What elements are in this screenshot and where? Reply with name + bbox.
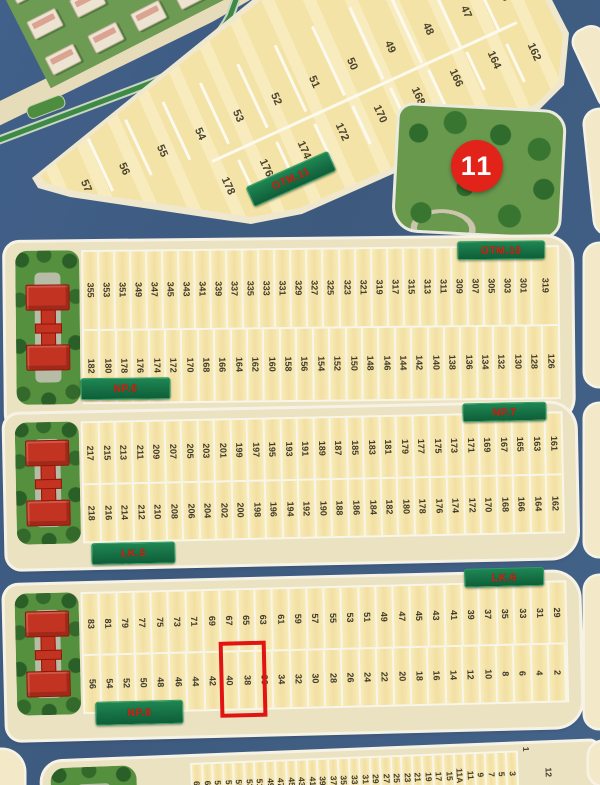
lot-191[interactable]: 191	[298, 418, 316, 479]
lot-179[interactable]: 179	[397, 416, 415, 477]
lot-204[interactable]: 204	[200, 483, 218, 539]
lot-313[interactable]: 313	[420, 248, 437, 325]
lot-173[interactable]: 173	[447, 415, 465, 476]
lot-number: 54	[104, 678, 114, 688]
building-bar	[25, 440, 70, 467]
lot-196[interactable]: 196	[266, 481, 284, 537]
lot-207[interactable]: 207	[165, 421, 183, 482]
lot-167[interactable]: 167	[496, 414, 514, 475]
lot-75[interactable]: 75	[152, 592, 171, 653]
lot-number: 79	[120, 618, 130, 628]
lot-number: 37	[329, 776, 339, 785]
lot-number: 11	[465, 771, 475, 780]
lot-number: 355	[85, 283, 95, 298]
lot-214[interactable]: 214	[117, 485, 135, 541]
lot-183[interactable]: 183	[364, 417, 382, 478]
lot-number: 174	[152, 358, 162, 373]
lot-number: 203	[201, 443, 211, 458]
lot-351[interactable]: 351	[115, 252, 132, 329]
lot-150[interactable]: 150	[346, 328, 363, 399]
lot-number: 199	[234, 443, 244, 458]
lot-162[interactable]: 162	[248, 329, 265, 400]
lot-136[interactable]: 136	[461, 327, 478, 398]
lot-number: 191	[300, 441, 310, 456]
lot-168[interactable]: 168	[498, 477, 516, 533]
lot-142[interactable]: 142	[412, 327, 429, 398]
lot-194[interactable]: 194	[282, 481, 300, 537]
lot-319[interactable]: 319	[372, 249, 389, 326]
partial-block	[585, 576, 600, 728]
lot-number: 50	[139, 678, 149, 688]
lot-number: 73	[172, 617, 182, 627]
lot-187[interactable]: 187	[331, 418, 349, 479]
lot-number: 158	[283, 357, 293, 372]
lot-30[interactable]: 30	[308, 650, 327, 706]
lot-198[interactable]: 198	[249, 482, 267, 538]
lot-number: 164	[234, 357, 244, 372]
lot-162[interactable]: 162	[525, 41, 543, 63]
apartment-pad	[14, 592, 81, 716]
lot-190[interactable]: 190	[316, 480, 334, 536]
lot-number: 59	[293, 614, 303, 624]
lot-number: 198	[252, 502, 262, 517]
lot-205[interactable]: 205	[182, 421, 200, 482]
lot-number: 311	[438, 279, 448, 294]
lot-156[interactable]: 156	[297, 329, 314, 400]
block-np7: 2172152132112092072052032011991971951931…	[4, 403, 577, 569]
lot-81[interactable]: 81	[100, 593, 119, 654]
apartment-pad	[15, 421, 82, 544]
lot-34[interactable]: 34	[273, 651, 292, 707]
lot-divider	[505, 43, 525, 82]
lot-number: 47	[397, 611, 407, 621]
lot-number: 319	[374, 280, 384, 295]
lot-73[interactable]: 73	[169, 592, 188, 653]
lot-number: 22	[380, 672, 390, 682]
lot-53[interactable]: 53	[342, 587, 361, 648]
lot-353[interactable]: 353	[99, 252, 116, 329]
lot-160[interactable]: 160	[264, 329, 281, 400]
lot-317[interactable]: 317	[388, 249, 405, 326]
lot-134[interactable]: 134	[478, 327, 495, 398]
lot-193[interactable]: 193	[281, 419, 299, 480]
lot-number: 193	[284, 442, 294, 457]
house-roof	[69, 0, 107, 18]
lot-number: 4	[535, 670, 545, 675]
lot-152[interactable]: 152	[330, 328, 347, 399]
lot-12[interactable]: 12	[463, 647, 482, 703]
lot-206[interactable]: 206	[183, 483, 201, 539]
lot-83[interactable]: 83	[82, 594, 101, 655]
apartment-building	[25, 610, 71, 697]
lot-154[interactable]: 154	[314, 328, 331, 399]
lot-number: 61	[202, 780, 212, 785]
lot-number: 168	[201, 358, 211, 373]
lot-164[interactable]: 164	[232, 329, 249, 400]
lot-161[interactable]: 161	[546, 413, 562, 474]
highlight-box	[219, 641, 268, 718]
lot-number: 183	[367, 440, 377, 455]
lot-number: 181	[383, 439, 393, 454]
lot-218[interactable]: 218	[84, 485, 102, 541]
lot-number: 178	[119, 359, 129, 374]
lot-355[interactable]: 355	[83, 252, 100, 329]
lot-row: 2172152132112092072052032011991971951931…	[83, 413, 562, 483]
lot-number: 12	[543, 767, 553, 777]
lot-number: 218	[87, 506, 97, 521]
lot-number: 177	[416, 439, 426, 454]
lot-number: 3	[507, 771, 517, 776]
lot-138[interactable]: 138	[445, 327, 462, 398]
lot-number: 29	[371, 774, 381, 784]
lot-number: 152	[333, 356, 343, 371]
lot-number: 208	[169, 504, 179, 519]
lot-number: 45	[414, 611, 424, 621]
lot-number: 48	[156, 677, 166, 687]
lot-28[interactable]: 28	[325, 650, 344, 706]
lot-311[interactable]: 311	[436, 248, 453, 325]
lot-321[interactable]: 321	[356, 249, 373, 326]
lot-197[interactable]: 197	[248, 420, 266, 481]
lot-number: 41	[448, 610, 458, 620]
lot-57[interactable]: 57	[307, 588, 326, 649]
lot-31[interactable]: 31	[532, 583, 551, 644]
lot-number: 11A	[455, 768, 466, 783]
lot-1[interactable]: 1	[521, 747, 531, 752]
lot-178[interactable]: 178	[219, 175, 237, 197]
lot-number: 26	[345, 673, 355, 683]
lot-329[interactable]: 329	[292, 250, 309, 327]
lot-343[interactable]: 343	[179, 251, 196, 328]
lot-number: 41	[308, 776, 318, 785]
partial-block	[585, 244, 600, 386]
lot-14[interactable]: 14	[541, 777, 558, 785]
lot-327[interactable]: 327	[308, 250, 325, 327]
lot-number: 56	[87, 679, 97, 689]
lot-148[interactable]: 148	[363, 328, 380, 399]
lot-185[interactable]: 185	[347, 417, 365, 478]
lot-32[interactable]: 32	[291, 651, 310, 707]
lot-number: 49	[266, 778, 276, 785]
lot-grid: 6361595755535149474543413937353331292725…	[190, 750, 523, 785]
lot-number: 303	[502, 279, 512, 294]
lot-number: 179	[400, 439, 410, 454]
lot-43[interactable]: 43	[428, 585, 447, 646]
lot-number: 315	[406, 280, 416, 295]
lot-169[interactable]: 169	[480, 415, 498, 476]
lot-number: 178	[418, 499, 428, 514]
lot-39[interactable]: 39	[462, 584, 481, 645]
lot-166[interactable]: 166	[514, 476, 532, 532]
lot-number: 15	[444, 771, 454, 781]
lot-number: 172	[467, 498, 477, 513]
lot-71[interactable]: 71	[186, 591, 205, 652]
lot-171[interactable]: 171	[463, 415, 481, 476]
lot-200[interactable]: 200	[233, 482, 251, 538]
lot-203[interactable]: 203	[198, 421, 216, 482]
lot-number: 132	[497, 355, 507, 370]
lot-337[interactable]: 337	[227, 250, 244, 327]
lot-177[interactable]: 177	[414, 416, 432, 477]
building-bar	[26, 670, 71, 697]
lot-210[interactable]: 210	[150, 484, 168, 540]
lot-number: 17	[434, 772, 444, 782]
house-roof	[26, 8, 64, 40]
lot-166[interactable]: 166	[215, 329, 232, 400]
lot-number: 163	[532, 436, 542, 451]
house-roof	[173, 0, 211, 10]
lot-number: 51	[362, 612, 372, 622]
lot-number: 185	[350, 440, 360, 455]
lot-347[interactable]: 347	[147, 251, 164, 328]
lot-4[interactable]: 4	[531, 645, 550, 701]
lot-divider	[465, 51, 485, 90]
lot-211[interactable]: 211	[132, 422, 150, 483]
lot-59[interactable]: 59	[290, 589, 309, 650]
lot-45[interactable]: 45	[411, 586, 430, 647]
lot-20[interactable]: 20	[394, 648, 413, 704]
lot-61[interactable]: 61	[272, 589, 291, 650]
lot-number: 345	[166, 282, 176, 297]
lot-number: 57	[223, 780, 233, 785]
lot-51[interactable]: 51	[359, 587, 378, 648]
lot-181[interactable]: 181	[380, 417, 398, 478]
lot-number: 24	[363, 672, 373, 682]
lot-8[interactable]: 8	[497, 646, 516, 702]
lot-24[interactable]: 24	[359, 649, 378, 705]
lot-number: 136	[464, 355, 474, 370]
lot-199[interactable]: 199	[232, 420, 250, 481]
lot-212[interactable]: 212	[134, 484, 152, 540]
lot-14[interactable]: 14	[445, 647, 464, 703]
lot-22[interactable]: 22	[377, 649, 396, 705]
lot-33[interactable]: 33	[514, 583, 533, 644]
lot-number: 156	[300, 357, 310, 372]
lot-12[interactable]: 12	[540, 751, 557, 778]
lot-number: 168	[500, 497, 510, 512]
lot-number: 2	[552, 670, 562, 675]
lot-166[interactable]: 166	[447, 67, 465, 89]
lot-number: 170	[484, 497, 494, 512]
lot-37[interactable]: 37	[480, 584, 499, 645]
lot-132[interactable]: 132	[494, 327, 511, 398]
lot-number: 207	[168, 444, 178, 459]
lot-165[interactable]: 165	[513, 414, 531, 475]
lot-10[interactable]: 10	[480, 646, 499, 702]
lot-44[interactable]: 44	[187, 653, 206, 709]
lot-number: 182	[384, 499, 394, 514]
lot-number: 166	[517, 497, 527, 512]
lot-41[interactable]: 41	[445, 585, 464, 646]
lot-number: 140	[431, 355, 441, 370]
lot-number: 186	[351, 500, 361, 515]
lot-215[interactable]: 215	[99, 423, 117, 484]
lot-number: 173	[449, 438, 459, 453]
lot-146[interactable]: 146	[379, 328, 396, 399]
lot-number: 195	[267, 442, 277, 457]
building-bar	[25, 610, 70, 637]
lot-number: 202	[219, 503, 229, 518]
lot-77[interactable]: 77	[134, 592, 153, 653]
lot-186[interactable]: 186	[349, 480, 367, 536]
lot-number: 349	[134, 282, 144, 297]
lot-6[interactable]: 6	[514, 645, 533, 701]
lot-201[interactable]: 201	[215, 420, 233, 481]
lot-number: 25	[392, 773, 402, 783]
lot-number: 190	[318, 501, 328, 516]
lot-number: 33	[350, 775, 360, 785]
lot-number: 327	[310, 281, 320, 296]
lot-row: 6361595755535149474543413937353331292725…	[192, 753, 520, 785]
lot-26[interactable]: 26	[342, 650, 361, 706]
lot-number: 171	[466, 438, 476, 453]
lot-164[interactable]: 164	[531, 476, 549, 532]
lot-128[interactable]: 128	[527, 326, 544, 397]
lot-2[interactable]: 2	[549, 645, 568, 701]
lot-number: 197	[251, 442, 261, 457]
lot-29[interactable]: 29	[549, 582, 566, 643]
lot-315[interactable]: 315	[404, 249, 421, 326]
lot-202[interactable]: 202	[216, 482, 234, 538]
lot-176[interactable]: 176	[431, 478, 449, 534]
lot-217[interactable]: 217	[83, 423, 101, 484]
lot-number: 210	[153, 504, 163, 519]
lot-number: 65	[241, 615, 251, 625]
lot-325[interactable]: 325	[324, 249, 341, 326]
lot-164[interactable]: 164	[485, 49, 503, 71]
lot-divider	[351, 105, 371, 144]
lot-55[interactable]: 55	[324, 588, 343, 649]
lot-number: 8	[500, 671, 510, 676]
lot-174[interactable]: 174	[448, 478, 466, 534]
lot-number: 212	[136, 505, 146, 520]
lot-number: 53	[345, 613, 355, 623]
lot-number: 182	[86, 359, 96, 374]
lot-140[interactable]: 140	[428, 327, 445, 398]
lot-number: 12	[466, 670, 476, 680]
lot-number: 128	[529, 354, 539, 369]
lot-349[interactable]: 349	[131, 251, 148, 328]
lot-35[interactable]: 35	[497, 584, 516, 645]
lot-number: 343	[182, 282, 192, 297]
side-lot-row: 121416	[540, 751, 559, 785]
lot-number: 31	[360, 774, 370, 784]
lot-79[interactable]: 79	[117, 593, 136, 654]
lot-144[interactable]: 144	[396, 328, 413, 399]
lot-184[interactable]: 184	[365, 479, 383, 535]
lot-number: 209	[152, 444, 162, 459]
lot-158[interactable]: 158	[281, 329, 298, 400]
lot-345[interactable]: 345	[163, 251, 180, 328]
lot-182[interactable]: 182	[382, 479, 400, 535]
lot-number: 307	[470, 279, 480, 294]
masterplan-map: 575655545352515049484746 178176174172170…	[0, 0, 600, 785]
lot-number: 200	[236, 503, 246, 518]
lot-192[interactable]: 192	[299, 481, 317, 537]
lot-175[interactable]: 175	[430, 416, 448, 477]
lot-335[interactable]: 335	[243, 250, 260, 327]
lot-number: 44	[190, 676, 200, 686]
lot-number: 6	[518, 671, 528, 676]
zone-tag-np7: NP.7	[462, 402, 546, 423]
lot-number: 69	[207, 616, 217, 626]
lot-number: 217	[85, 446, 95, 461]
lot-195[interactable]: 195	[265, 419, 283, 480]
location-marker-icon[interactable]: 11	[451, 140, 503, 192]
lot-number: 301	[518, 278, 528, 293]
lot-208[interactable]: 208	[167, 483, 185, 539]
lot-number: 164	[533, 496, 543, 511]
lot-number: 52	[122, 678, 132, 688]
lot-126[interactable]: 126	[543, 326, 558, 397]
lot-number: 31	[535, 608, 545, 618]
lot-331[interactable]: 331	[276, 250, 293, 327]
lot-3[interactable]: 3	[507, 753, 520, 785]
lot-189[interactable]: 189	[314, 418, 332, 479]
building-bar	[26, 500, 71, 527]
lot-178[interactable]: 178	[415, 478, 433, 534]
lot-162[interactable]: 162	[547, 476, 563, 532]
zone-tag-otm10: OTM.10	[457, 240, 545, 260]
lot-213[interactable]: 213	[116, 422, 134, 483]
lot-number: 28	[328, 673, 338, 683]
lot-172[interactable]: 172	[464, 477, 482, 533]
lot-172[interactable]: 172	[333, 121, 351, 143]
lot-grid: 8381797775737169676563615957555351494745…	[80, 580, 569, 714]
lot-341[interactable]: 341	[195, 251, 212, 328]
lot-number: 201	[218, 443, 228, 458]
lot-168[interactable]: 168	[199, 330, 216, 401]
lot-18[interactable]: 18	[411, 648, 430, 704]
lot-49[interactable]: 49	[376, 587, 395, 648]
lot-number: 333	[262, 281, 272, 296]
lot-number: 134	[480, 355, 490, 370]
lot-number: 21	[413, 772, 423, 782]
lot-170[interactable]: 170	[481, 477, 499, 533]
lot-16[interactable]: 16	[428, 648, 447, 704]
lot-number: 331	[278, 281, 288, 296]
lot-339[interactable]: 339	[211, 251, 228, 328]
lot-188[interactable]: 188	[332, 480, 350, 536]
lot-216[interactable]: 216	[100, 485, 118, 541]
lot-number: 5	[497, 772, 507, 777]
lot-number: 43	[297, 777, 307, 785]
lot-130[interactable]: 130	[511, 326, 528, 397]
lot-170[interactable]: 170	[371, 103, 389, 125]
lot-163[interactable]: 163	[529, 414, 547, 475]
lot-number: 19	[423, 772, 433, 782]
lot-209[interactable]: 209	[149, 422, 167, 483]
lot-170[interactable]: 170	[182, 330, 199, 401]
lot-180[interactable]: 180	[398, 479, 416, 535]
lot-number: 175	[433, 438, 443, 453]
lot-number: 309	[454, 279, 464, 294]
block-bottom: 6361595755535149474543413937353331292725…	[42, 741, 600, 785]
lot-333[interactable]: 333	[259, 250, 276, 327]
lot-number: 188	[335, 500, 345, 515]
lot-number: 165	[516, 437, 526, 452]
partial-block	[585, 404, 600, 556]
lot-number: 10	[483, 669, 493, 679]
lot-number: 39	[318, 776, 328, 785]
zone-tag-lk5: LK.5	[91, 541, 175, 565]
lot-number: 216	[103, 505, 113, 520]
lot-323[interactable]: 323	[340, 249, 357, 326]
lot-number: 49	[379, 612, 389, 622]
lot-47[interactable]: 47	[393, 586, 412, 647]
lot-number: 144	[398, 356, 408, 371]
partial-block	[0, 750, 24, 785]
